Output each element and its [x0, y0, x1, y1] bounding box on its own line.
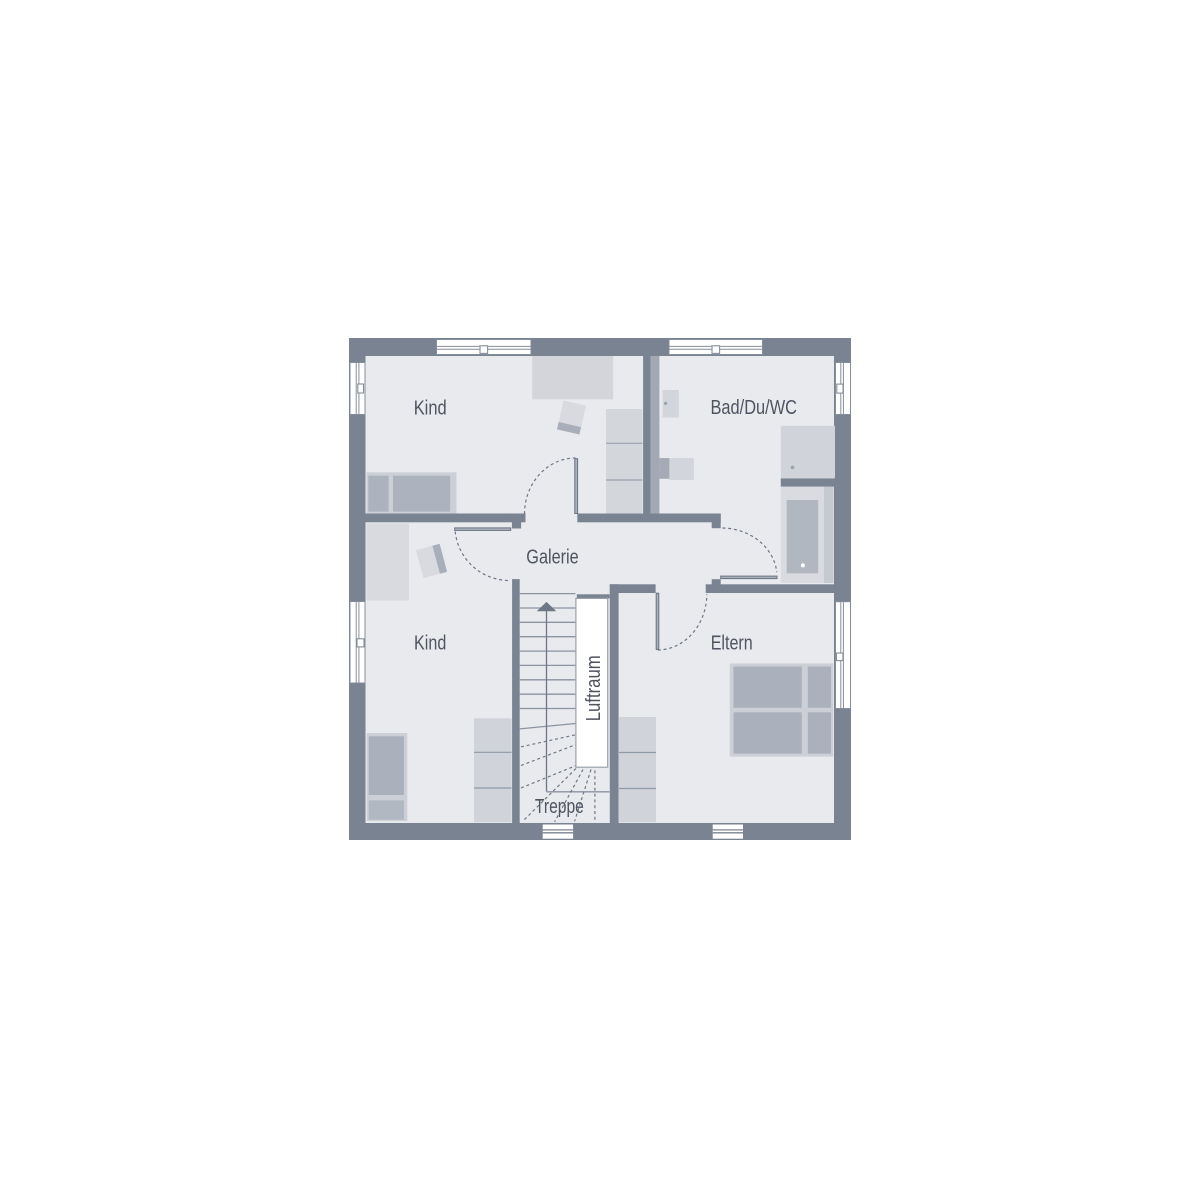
svg-text:Bad/Du/WC: Bad/Du/WC [711, 397, 798, 419]
svg-text:Luftraum: Luftraum [583, 655, 605, 721]
svg-text:Eltern: Eltern [711, 632, 753, 654]
svg-text:Kind: Kind [414, 398, 447, 420]
svg-text:Treppe: Treppe [535, 796, 584, 818]
svg-text:Kind: Kind [414, 633, 446, 655]
svg-text:Galerie: Galerie [526, 547, 578, 569]
